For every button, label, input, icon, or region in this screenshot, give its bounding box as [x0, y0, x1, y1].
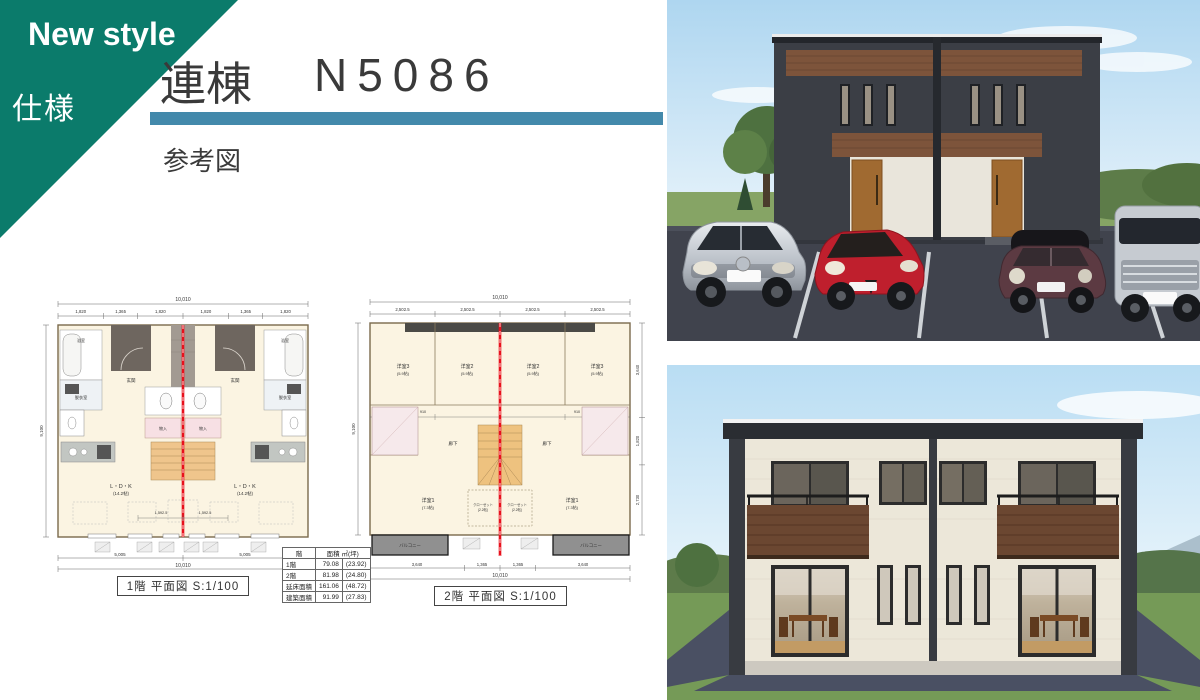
plan2-dim-seg: 2,502.5 [395, 307, 410, 312]
area-row-sqm: 79.08 [316, 559, 343, 570]
area-table: 階 面積 ㎡(坪) 1階 79.08 (23.92) 2階 81.98 (24.… [282, 547, 371, 603]
plan2-yoshitsu1-size: (7.3帖) [566, 504, 579, 510]
wood-band-entry-right [941, 133, 1042, 157]
plan2-dim-right-seg: 3,640 [635, 364, 640, 375]
plan2-rouka-label: 廊下 [543, 440, 552, 447]
table-row: 2階 81.98 (24.80) [283, 570, 371, 581]
render-photo-rear [667, 365, 1200, 700]
plan1-ldk-size: (14.2帖) [113, 490, 129, 497]
plan2-balcony-label: バルコニー [399, 543, 421, 548]
plan2-yoshitsu3-size: (5.9帖) [397, 370, 410, 376]
area-row-tsubo: (24.80) [342, 570, 370, 581]
plan1-monoire-label: 物入 [159, 425, 167, 431]
center-divider [933, 37, 941, 240]
plan1-datsui-label: 脱衣室 [279, 394, 292, 401]
center-divider [929, 439, 937, 675]
plan1-dim-seg: 1,820 [201, 309, 212, 314]
plan1-monoire-label: 物入 [199, 425, 207, 431]
plan2-dim-bottom-seg: 3,640 [578, 562, 589, 567]
spec-sheet-page: New style 仕様 連棟 N5086 参考図 10,010 1,820 1… [0, 0, 1200, 700]
title-underline-bar [150, 112, 663, 125]
plan1-svg: 10,010 1,820 1,365 1,820 1,820 1,365 1,8… [33, 292, 333, 574]
area-row-label: 1階 [283, 559, 316, 570]
patio-door-left [771, 565, 849, 657]
corner-pillar-right [1121, 439, 1137, 675]
plan1-top-dim-lines [58, 301, 308, 319]
plan2-dim-bottom-seg: 1,365 [477, 562, 488, 567]
plan2-dim-bottom-total: 10,010 [492, 573, 508, 579]
plan1-dim-seg: 1,820 [75, 309, 86, 314]
plan2-center-dim: 910 [420, 410, 426, 414]
area-table-col-area: 面積 ㎡(坪) [316, 548, 371, 559]
plan1-center-dim: 1,592.5 [199, 511, 212, 515]
plan1-dim-seg: 1,820 [155, 309, 166, 314]
plan1-dim-side-total: 9,100 [39, 425, 44, 437]
balcony-left [747, 496, 869, 559]
plan2-yoshitsu2-size: (5.9帖) [527, 370, 540, 376]
plan2-dim-right-seg: 2,730 [635, 494, 640, 505]
plan1-bath-label: 浴室 [281, 337, 289, 343]
table-row: 1階 79.08 (23.92) [283, 559, 371, 570]
table-row: 延床面積 161.06 (48.72) [283, 581, 371, 592]
plan1-dim-seg: 1,365 [115, 309, 126, 314]
plan2-dim-top-total: 10,010 [492, 295, 508, 301]
patio-door-right [1018, 565, 1096, 657]
plan2-yoshitsu3-label: 洋室3 [591, 363, 604, 370]
front-render-svg [667, 0, 1200, 341]
render-photo-front [667, 0, 1200, 341]
plan2-dim-right-seg: 1,820 [635, 435, 640, 446]
plan1-dim-bottom-total: 10,010 [175, 563, 191, 569]
area-table-col-floor: 階 [283, 548, 316, 559]
plan2-svg: 10,010 2,502.5 2,502.5 2,502.5 2,502.5 洋… [343, 290, 658, 584]
front-building [771, 34, 1103, 245]
banner-line2: 仕様 [12, 84, 76, 128]
model-type: 連棟 [160, 48, 252, 114]
area-row-tsubo: (23.92) [342, 559, 370, 570]
plan2-dim-seg: 2,502.5 [590, 307, 605, 312]
area-row-tsubo: (48.72) [342, 581, 370, 592]
plan2-closet-label: クローゼット [507, 502, 527, 507]
plan1-caption: 1階 平面図 S:1/100 [117, 576, 249, 596]
plan2-closet-size: (2.2帖) [478, 507, 488, 512]
plan1-ldk-label: L・D・K [234, 484, 256, 490]
plan1-dim-seg: 1,365 [240, 309, 251, 314]
plan2-yoshitsu2-label: 洋室2 [527, 363, 540, 370]
plan2-dim-bottom-seg: 3,640 [412, 562, 423, 567]
plan1-dim-top-total: 10,010 [175, 297, 191, 303]
car-silver-van [1115, 206, 1200, 322]
plan2-dim-side-total: 9,100 [351, 423, 356, 435]
rear-render-svg [667, 365, 1200, 700]
balcony-right [997, 496, 1119, 559]
wood-band-entry-left [832, 133, 933, 157]
corner-pillar-left [729, 439, 745, 675]
plan1-genkan-label: 玄関 [127, 377, 136, 384]
reference-drawing-label: 参考図 [163, 141, 241, 178]
plan1-dim-seg: 1,820 [280, 309, 291, 314]
plan2-yoshitsu3-label: 洋室3 [397, 363, 410, 370]
plan2-closet-label: クローゼット [473, 502, 493, 507]
plan1-center-dim: 1,592.5 [155, 511, 168, 515]
plan2-balcony-label: バルコニー [580, 543, 602, 548]
rear-building [723, 419, 1143, 675]
plan2-closet-size: (2.2帖) [512, 507, 522, 512]
plan2-center-dim: 910 [574, 410, 580, 414]
area-row-label: 建築面積 [283, 592, 316, 603]
area-row-sqm: 161.06 [316, 581, 343, 592]
plan2-rouka-label: 廊下 [449, 440, 458, 447]
plan1-dim-bottom-half: 5,005 [114, 552, 126, 557]
area-row-sqm: 81.98 [316, 570, 343, 581]
floor-plan-2f: 10,010 2,502.5 2,502.5 2,502.5 2,502.5 洋… [343, 290, 658, 606]
plan1-ldk-label: L・D・K [110, 484, 132, 490]
plan2-yoshitsu1-label: 洋室1 [422, 497, 435, 504]
area-row-sqm: 91.99 [316, 592, 343, 603]
table-row: 建築面積 91.99 (27.83) [283, 592, 371, 603]
plan1-ldk-size: (14.2帖) [237, 490, 253, 497]
banner-line1: New style [28, 16, 176, 53]
plan2-yoshitsu1-label: 洋室1 [566, 497, 579, 504]
plan2-yoshitsu1-size: (7.3帖) [422, 504, 435, 510]
plan2-caption: 2階 平面図 S:1/100 [434, 586, 566, 606]
plan1-bath-label: 浴室 [77, 337, 85, 343]
plan2-yoshitsu2-label: 洋室2 [461, 363, 474, 370]
plan1-genkan-label: 玄関 [231, 377, 240, 384]
plan1-datsui-label: 脱衣室 [75, 394, 88, 401]
plan1-spec-boxes [95, 542, 266, 552]
area-row-tsubo: (27.83) [342, 592, 370, 603]
plan2-dim-bottom-seg: 1,365 [513, 562, 524, 567]
model-number: N5086 [314, 48, 500, 114]
plan1-dim-bottom-half: 5,005 [239, 552, 251, 557]
plan2-dim-seg: 2,502.5 [460, 307, 475, 312]
plan2-dim-seg: 2,502.5 [525, 307, 540, 312]
area-row-label: 2階 [283, 570, 316, 581]
page-title: 連棟 N5086 [160, 48, 500, 114]
plan2-yoshitsu3-size: (5.9帖) [591, 370, 604, 376]
plan2-yoshitsu2-size: (5.9帖) [461, 370, 474, 376]
foundation-skirt [745, 661, 1121, 675]
area-row-label: 延床面積 [283, 581, 316, 592]
